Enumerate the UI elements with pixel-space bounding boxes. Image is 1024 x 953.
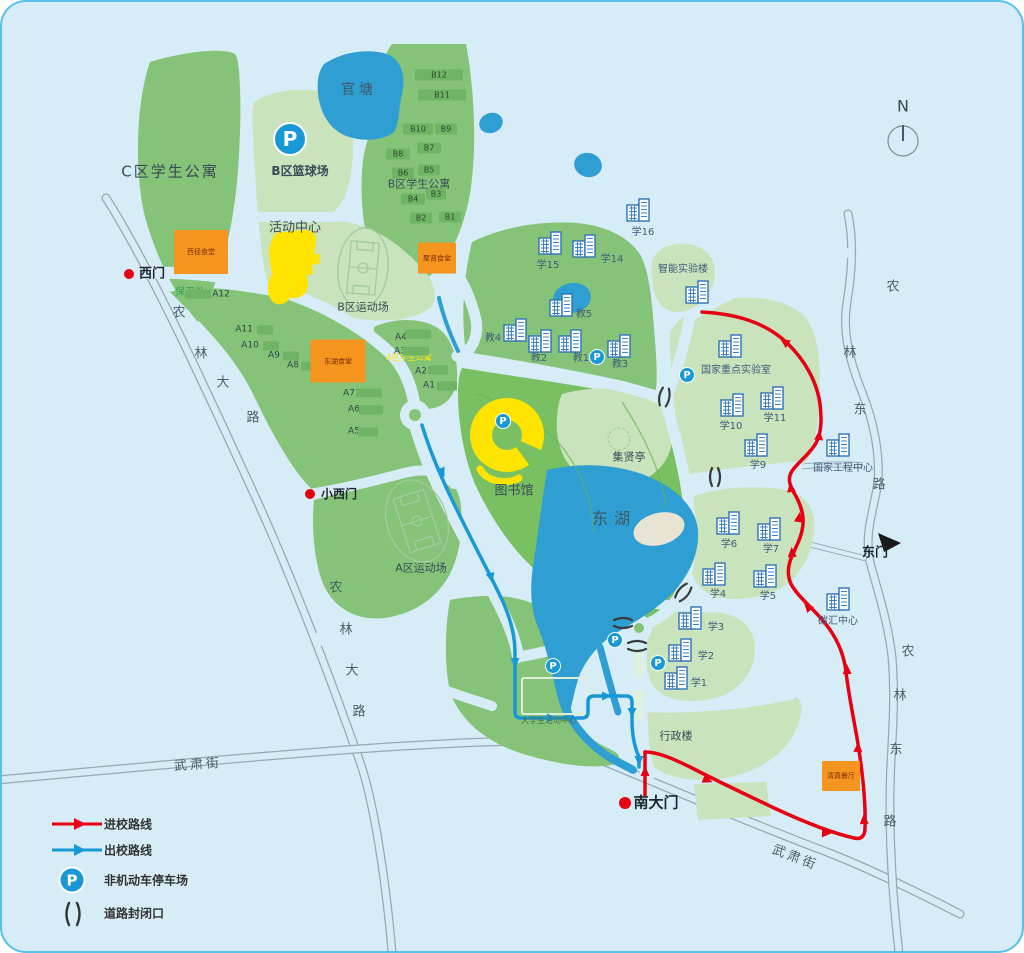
parking-glyph: P <box>611 635 618 646</box>
building-label: 学4 <box>710 590 726 600</box>
road-name: 武肃街 <box>174 757 223 773</box>
road-name-char: 林 <box>843 347 856 360</box>
dorm-bar <box>283 352 299 361</box>
parking-glyph: P <box>654 658 661 669</box>
road-name-char: 路 <box>246 412 259 425</box>
dorm-bar <box>437 382 457 391</box>
parking-glyph: P <box>593 352 600 363</box>
dorm-label: A7 <box>343 390 355 399</box>
building-label: 学16 <box>632 228 655 238</box>
gate-label: 小西门 <box>321 488 357 500</box>
label-east-lake: 东湖 <box>592 511 636 527</box>
label-b-sports-field: B区运动场 <box>337 302 389 313</box>
building-icon <box>716 331 746 361</box>
dorm-bar <box>356 389 382 398</box>
road-name-char: 大 <box>216 377 229 390</box>
label-activity-center: 活动中心 <box>269 222 321 235</box>
dorm-block: B12 <box>415 70 463 81</box>
dorm-label: A11 <box>235 326 253 335</box>
dorm-bar <box>185 290 211 299</box>
parking-icon: P <box>589 349 605 365</box>
building-icon <box>824 584 854 614</box>
road-name-char: 林 <box>194 348 207 361</box>
dorm-block: B2 <box>410 213 432 224</box>
building-label: 学10 <box>720 422 743 432</box>
legend-road-closure: 道路封闭口 <box>104 905 164 922</box>
building-label: 学15 <box>537 261 560 271</box>
dorm-block: B5 <box>418 165 440 176</box>
building-icon <box>556 326 586 356</box>
dorm-label: A10 <box>241 342 259 351</box>
label-library: 图书馆 <box>494 485 533 498</box>
road-name-char: 林 <box>893 690 906 703</box>
parking-glyph: P <box>283 127 298 151</box>
road-closure-icon <box>621 637 649 655</box>
entry-route-icon <box>48 817 106 831</box>
building-label: 碳汇中心 <box>818 617 858 627</box>
parking-glyph: P <box>67 871 78 889</box>
dorm-bar <box>358 428 378 437</box>
parking-icon: P <box>273 122 307 156</box>
building-label: 教3 <box>612 360 628 370</box>
compass-north-label: N <box>897 97 909 116</box>
building-icon <box>742 430 772 460</box>
dorm-bar <box>403 347 429 356</box>
dorm-block: B11 <box>418 90 466 101</box>
label-c-district-apartments: C区学生公寓 <box>121 165 218 180</box>
dorm-label: A9 <box>268 352 280 361</box>
parking-icon: P <box>495 413 511 429</box>
building-label: 学14 <box>601 255 624 265</box>
dorm-label: A12 <box>212 291 230 300</box>
parking-glyph: P <box>549 661 556 672</box>
dorm-block: B4 <box>401 194 425 205</box>
dorm-bar <box>359 406 383 415</box>
label-a-sports-field: A区运动场 <box>395 563 447 574</box>
road-closure-icon <box>607 614 635 632</box>
road-name-char: 农 <box>172 307 185 320</box>
building-icon <box>662 663 692 693</box>
building-icon <box>718 390 748 420</box>
label-student-activity-center: 大学生活动中心 <box>521 717 577 725</box>
building-icon <box>700 559 730 589</box>
parking-icon: P <box>679 367 695 383</box>
building-icon <box>624 195 654 225</box>
building-label: 学9 <box>750 461 766 471</box>
gate-dot <box>619 797 631 809</box>
dorm-label: A8 <box>287 362 299 371</box>
road-name-char: 东 <box>853 404 866 417</box>
building-label: 教4 <box>485 334 501 344</box>
building-label: 教2 <box>531 354 547 364</box>
canteen: 东湖食堂 <box>311 340 366 383</box>
building-icon <box>714 508 744 538</box>
building-icon <box>755 514 785 544</box>
road-name-char: 农 <box>901 646 914 659</box>
road-name-char: 路 <box>872 479 885 492</box>
building-label: 国家重点实验室 <box>701 366 771 376</box>
building-icon <box>751 561 781 591</box>
building-icon <box>570 231 600 261</box>
dorm-block: B3 <box>426 189 446 200</box>
road-name-char: 大 <box>345 665 358 678</box>
gate-label: 西门 <box>139 268 165 281</box>
road-name-char: 路 <box>883 816 896 829</box>
dorm-bar <box>405 330 431 339</box>
building-label: 学3 <box>708 623 724 633</box>
building-icon <box>605 331 635 361</box>
canteen-label: 清真餐厅 <box>827 771 855 781</box>
building-label: 智能实验楼 <box>658 265 708 275</box>
canteen-label: 西径食堂 <box>187 247 215 257</box>
label-guantang-pond: 官塘 <box>341 83 377 97</box>
gate-dot <box>124 269 134 279</box>
gate-dot <box>305 489 315 499</box>
building-icon <box>666 635 696 665</box>
building-label: 国家工程中心 <box>813 464 873 474</box>
dorm-block: B10 <box>403 124 433 135</box>
exit-route-icon <box>48 843 106 857</box>
road-closure-icon <box>653 384 676 415</box>
building-label: 学1 <box>691 679 707 689</box>
road-name-char: 农 <box>886 281 899 294</box>
building-label: 学5 <box>760 592 776 602</box>
compass-icon <box>886 121 922 159</box>
map-overlay: C区学生公寓B区篮球场B区学生公寓活动中心B区运动场A区运动场官塘东湖图书馆集贤… <box>2 2 1022 951</box>
legend-parking: 非机动车停车场 <box>104 872 188 889</box>
road-name-char: 林 <box>339 624 352 637</box>
dorm-bar <box>263 342 279 351</box>
canteen-label: 东湖食堂 <box>324 356 352 366</box>
dorm-label: A1 <box>423 382 435 391</box>
road-name-char: 农 <box>329 582 342 595</box>
building-icon <box>824 430 854 460</box>
canteen: 聚贤食堂 <box>418 243 456 274</box>
parking-icon: P <box>59 867 86 894</box>
gate-label: 东门 <box>862 547 888 560</box>
campus-map: C区学生公寓B区篮球场B区学生公寓活动中心B区运动场A区运动场官塘东湖图书馆集贤… <box>0 0 1024 953</box>
canteen-label: 聚贤食堂 <box>423 253 451 263</box>
building-icon <box>547 290 577 320</box>
label-b-basketball-court: B区篮球场 <box>271 165 328 177</box>
dorm-bar <box>257 326 273 335</box>
road-name: 武肃街 <box>770 843 819 872</box>
dorm-block: B9 <box>435 124 457 135</box>
dorm-block: B8 <box>386 149 410 160</box>
road-name-char: 路 <box>352 706 365 719</box>
building-label: 教5 <box>576 310 592 320</box>
building-icon <box>683 277 713 307</box>
parking-icon: P <box>545 658 561 674</box>
road-closure-icon <box>706 465 724 493</box>
building-icon <box>758 383 788 413</box>
gate-label: 南大门 <box>633 796 678 811</box>
road-closure-icon <box>62 900 84 928</box>
parking-glyph: P <box>683 370 690 381</box>
parking-glyph: P <box>499 416 506 427</box>
canteen: 西径食堂 <box>174 230 228 274</box>
legend-entry-route: 进校路线 <box>104 816 152 833</box>
dorm-block: B7 <box>417 143 441 154</box>
dorm-bar <box>428 366 448 375</box>
building-label: 学2 <box>698 652 714 662</box>
parking-icon: P <box>650 655 666 671</box>
label-admin-building: 行政楼 <box>660 731 693 742</box>
building-icon <box>536 228 566 258</box>
dorm-block: B6 <box>392 168 414 179</box>
building-label: 学7 <box>763 545 779 555</box>
dorm-label: A2 <box>415 368 427 377</box>
building-icon <box>526 326 556 356</box>
building-label: 教1 <box>573 354 589 364</box>
canteen: 清真餐厅 <box>822 761 860 791</box>
building-label: 学6 <box>721 540 737 550</box>
road-name-char: 东 <box>889 744 902 757</box>
building-label: 学11 <box>764 414 787 424</box>
label-jixian-pavilion: 集贤亭 <box>613 452 646 463</box>
legend-exit-route: 出校路线 <box>104 842 152 859</box>
dorm-block: B1 <box>439 212 461 223</box>
